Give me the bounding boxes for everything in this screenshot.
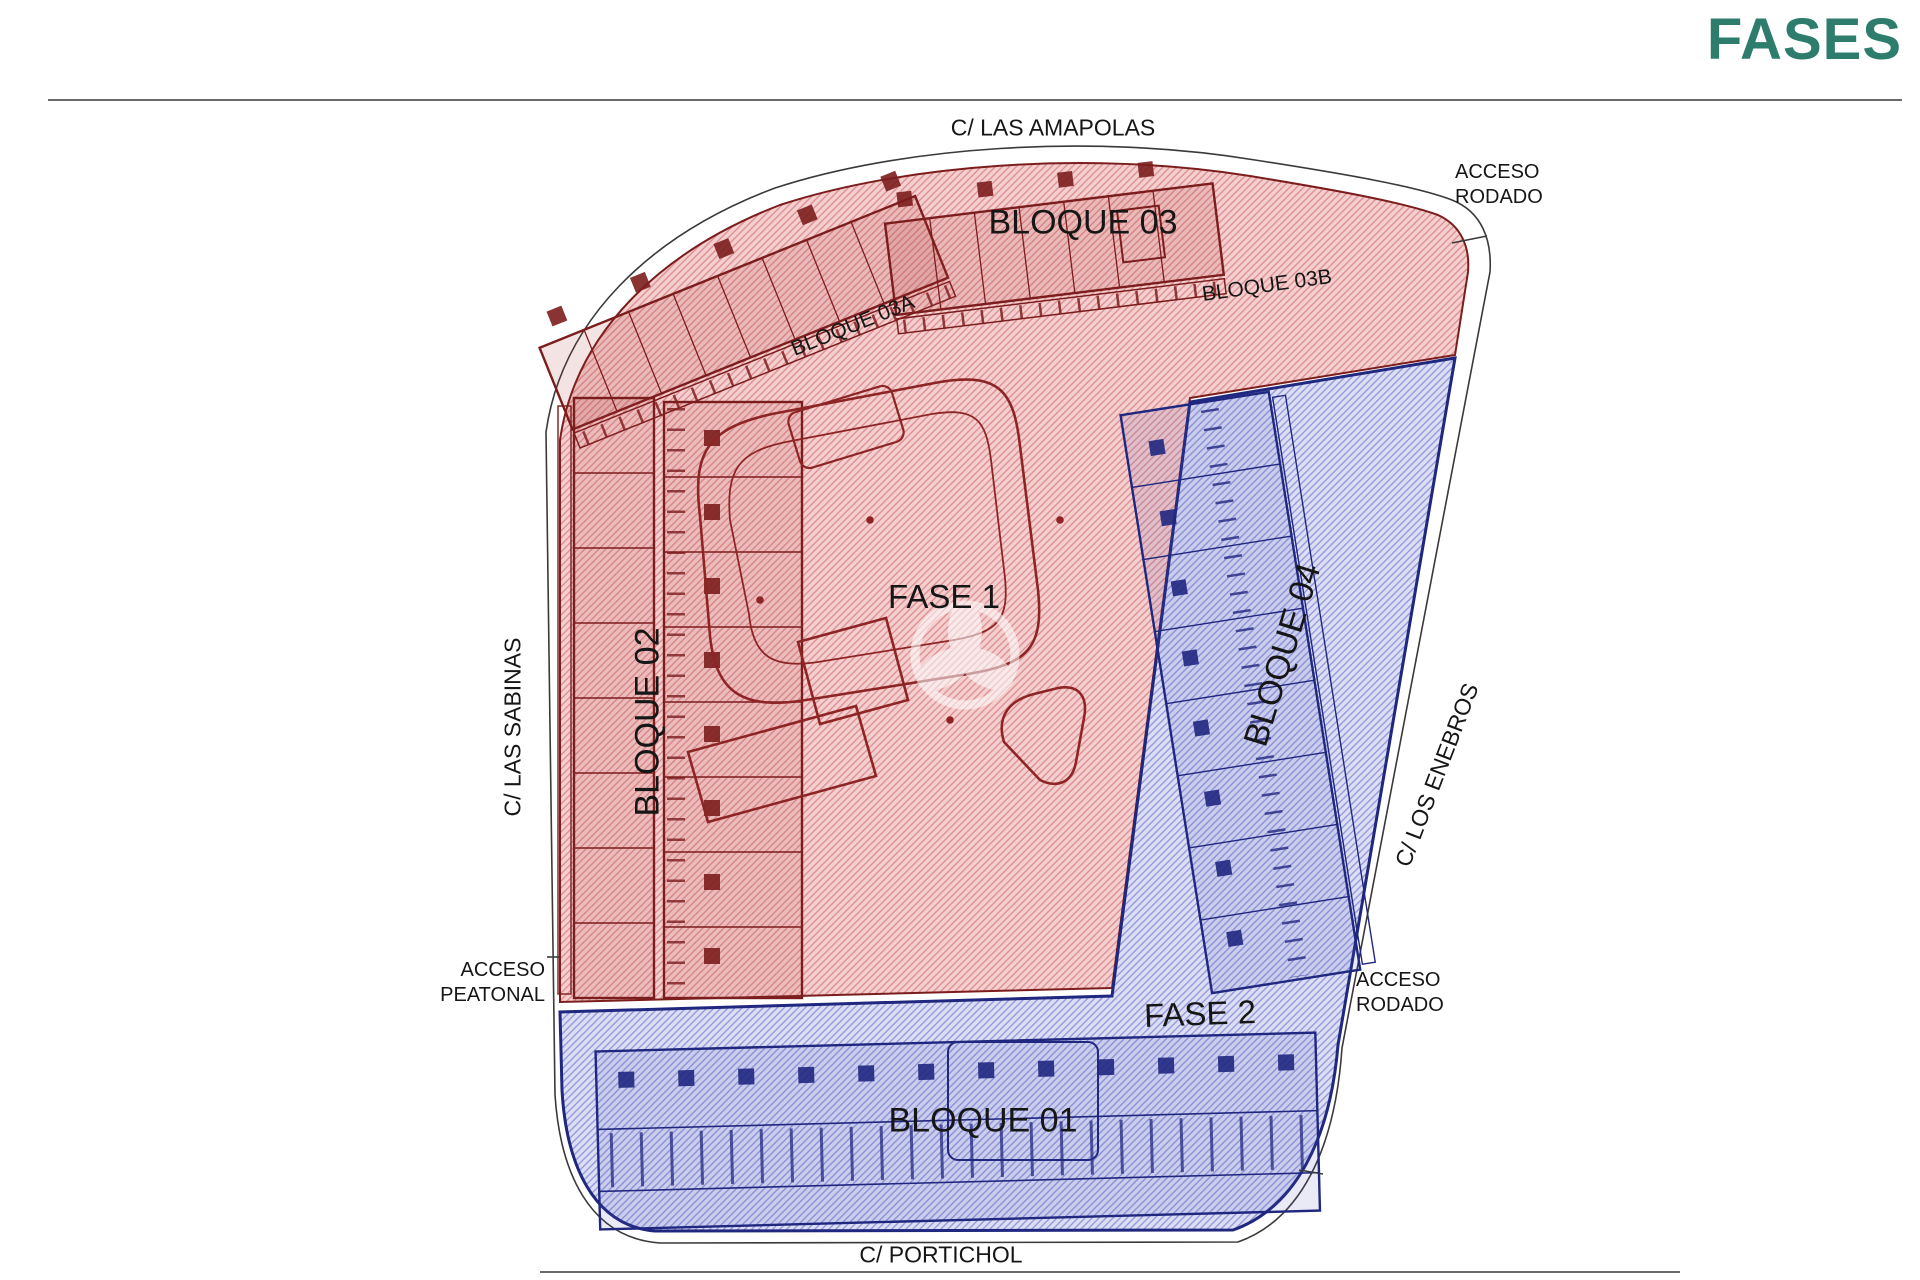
access-right-line2: RODADO: [1356, 993, 1444, 1018]
block-label-bloque-01: BLOQUE 01: [889, 1102, 1078, 1141]
access-label-right: ACCESO RODADO: [1356, 968, 1444, 1018]
street-label-las-amapolas: C/ LAS AMAPOLAS: [951, 115, 1156, 142]
access-top-right-line1: ACCESO: [1455, 160, 1543, 185]
fases-sheet: FASES: [0, 0, 1920, 1280]
street-label-portichol: C/ PORTICHOL: [859, 1242, 1022, 1269]
access-left-line1: ACCESO: [420, 958, 545, 983]
access-left-line2: PEATONAL: [420, 983, 545, 1008]
block-label-bloque-03: BLOQUE 03: [989, 204, 1178, 243]
access-right-line1: ACCESO: [1356, 968, 1444, 993]
block-label-bloque-02: BLOQUE 02: [629, 628, 668, 817]
access-label-top-right: ACCESO RODADO: [1455, 160, 1543, 210]
access-top-right-line2: RODADO: [1455, 185, 1543, 210]
site-plan-drawing: [0, 0, 1920, 1280]
phase-label-fase-1: FASE 1: [888, 578, 1000, 616]
bloque-02-building: [558, 398, 802, 998]
street-label-las-sabinas: C/ LAS SABINAS: [500, 638, 527, 817]
access-label-left: ACCESO PEATONAL: [420, 958, 545, 1008]
phase-label-fase-2: FASE 2: [1143, 993, 1256, 1035]
